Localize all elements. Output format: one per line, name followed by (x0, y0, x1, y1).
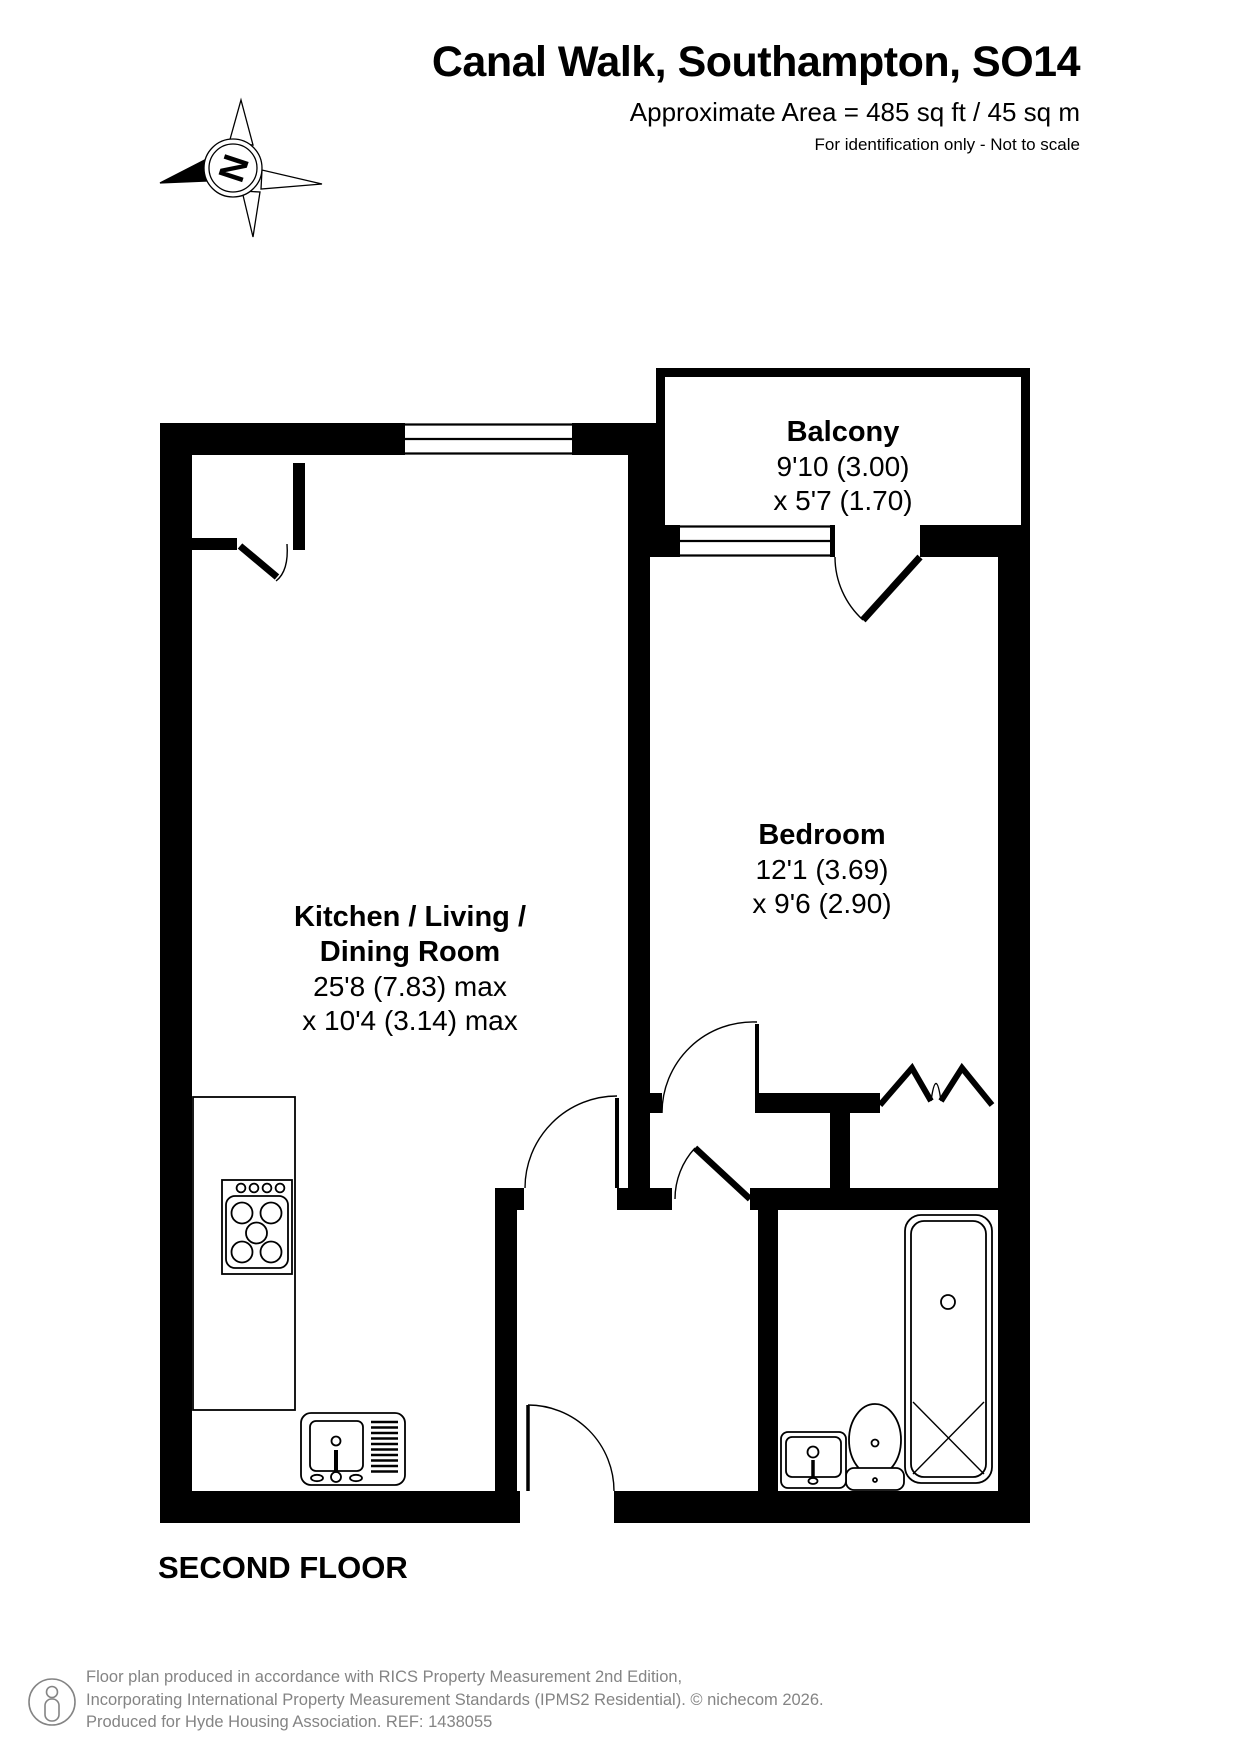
kitchen-living-label: Kitchen / Living / Dining Room 25'8 (7.8… (294, 900, 526, 1038)
entrance-door-opening (520, 1491, 614, 1523)
wall-balcony-left (656, 377, 665, 525)
bath-icon (905, 1215, 992, 1483)
bedroom-dim2: x 9'6 (2.90) (752, 887, 891, 921)
bedroom-label: Bedroom 12'1 (3.69) x 9'6 (2.90) (752, 818, 891, 921)
wall-exterior-right (998, 525, 1030, 1523)
floor-label: SECOND FLOOR (158, 1550, 408, 1586)
balcony-label: Balcony 9'10 (3.00) x 5'7 (1.70) (773, 415, 912, 518)
bedroom-dim1: 12'1 (3.69) (752, 853, 891, 887)
kitchen-fixtures (193, 1097, 405, 1485)
bathroom-fixtures (781, 1215, 992, 1490)
balcony-door-arc (835, 557, 863, 620)
person-icon (26, 1676, 78, 1728)
wall-kitchen-hall (495, 1188, 517, 1491)
wall-kitchen-bedroom (628, 455, 650, 1188)
kitchen-door-arc (525, 1096, 617, 1188)
compass-spike-up (229, 100, 253, 145)
wall-store-stub (192, 538, 237, 550)
balcony-name: Balcony (773, 415, 912, 450)
compass-spike-down (242, 191, 260, 237)
kitchen-sink-icon (301, 1413, 405, 1485)
bedroom-door-arc (662, 1022, 757, 1113)
wall-hall-north-mid (617, 1188, 672, 1210)
balcony-door-leaf (863, 557, 920, 620)
wardrobe-bifold-left (880, 1068, 931, 1105)
floorplan-page: { "header": { "title": "Canal Walk, Sout… (0, 0, 1241, 1755)
wall-balcony-top (656, 368, 1030, 377)
wall-balcony-right (1021, 377, 1030, 525)
bedroom-name: Bedroom (752, 818, 891, 853)
wall-wardrobe-side (830, 1113, 850, 1188)
footer-disclaimer: Floor plan produced in accordance with R… (86, 1666, 824, 1734)
wardrobe-bifold-right (941, 1068, 992, 1105)
footer-line1: Floor plan produced in accordance with R… (86, 1666, 824, 1689)
kitchen-name-line2: Dining Room (294, 935, 526, 970)
wall-bedroom-south (757, 1093, 880, 1113)
entrance-door-arc (528, 1405, 614, 1491)
wall-bathroom-top (750, 1188, 998, 1210)
kitchen-name-line1: Kitchen / Living / (294, 900, 526, 935)
wall-exterior-left (160, 423, 192, 1523)
compass-spike-right (261, 170, 322, 189)
bathroom-door-arc (675, 1148, 695, 1199)
kitchen-dim1: 25'8 (7.83) max (294, 970, 526, 1004)
floorplan-canvas: N (0, 0, 1241, 1755)
wall-store-right (293, 463, 305, 550)
wall-bedroom-south-stub (650, 1093, 662, 1113)
kitchen-dim2: x 10'4 (3.14) max (294, 1004, 526, 1038)
footer-line2: Incorporating International Property Mea… (86, 1689, 824, 1712)
store-door-leaf (240, 546, 277, 577)
balcony-door-opening (835, 525, 920, 557)
basin-icon (781, 1432, 846, 1488)
balcony-dim1: 9'10 (3.00) (773, 450, 912, 484)
balcony-dim2: x 5'7 (1.70) (773, 484, 912, 518)
bathroom-door-leaf (695, 1148, 750, 1199)
footer-line3: Produced for Hyde Housing Association. R… (86, 1711, 824, 1734)
toilet-icon (846, 1404, 904, 1490)
wall-bathroom-left (758, 1210, 778, 1491)
